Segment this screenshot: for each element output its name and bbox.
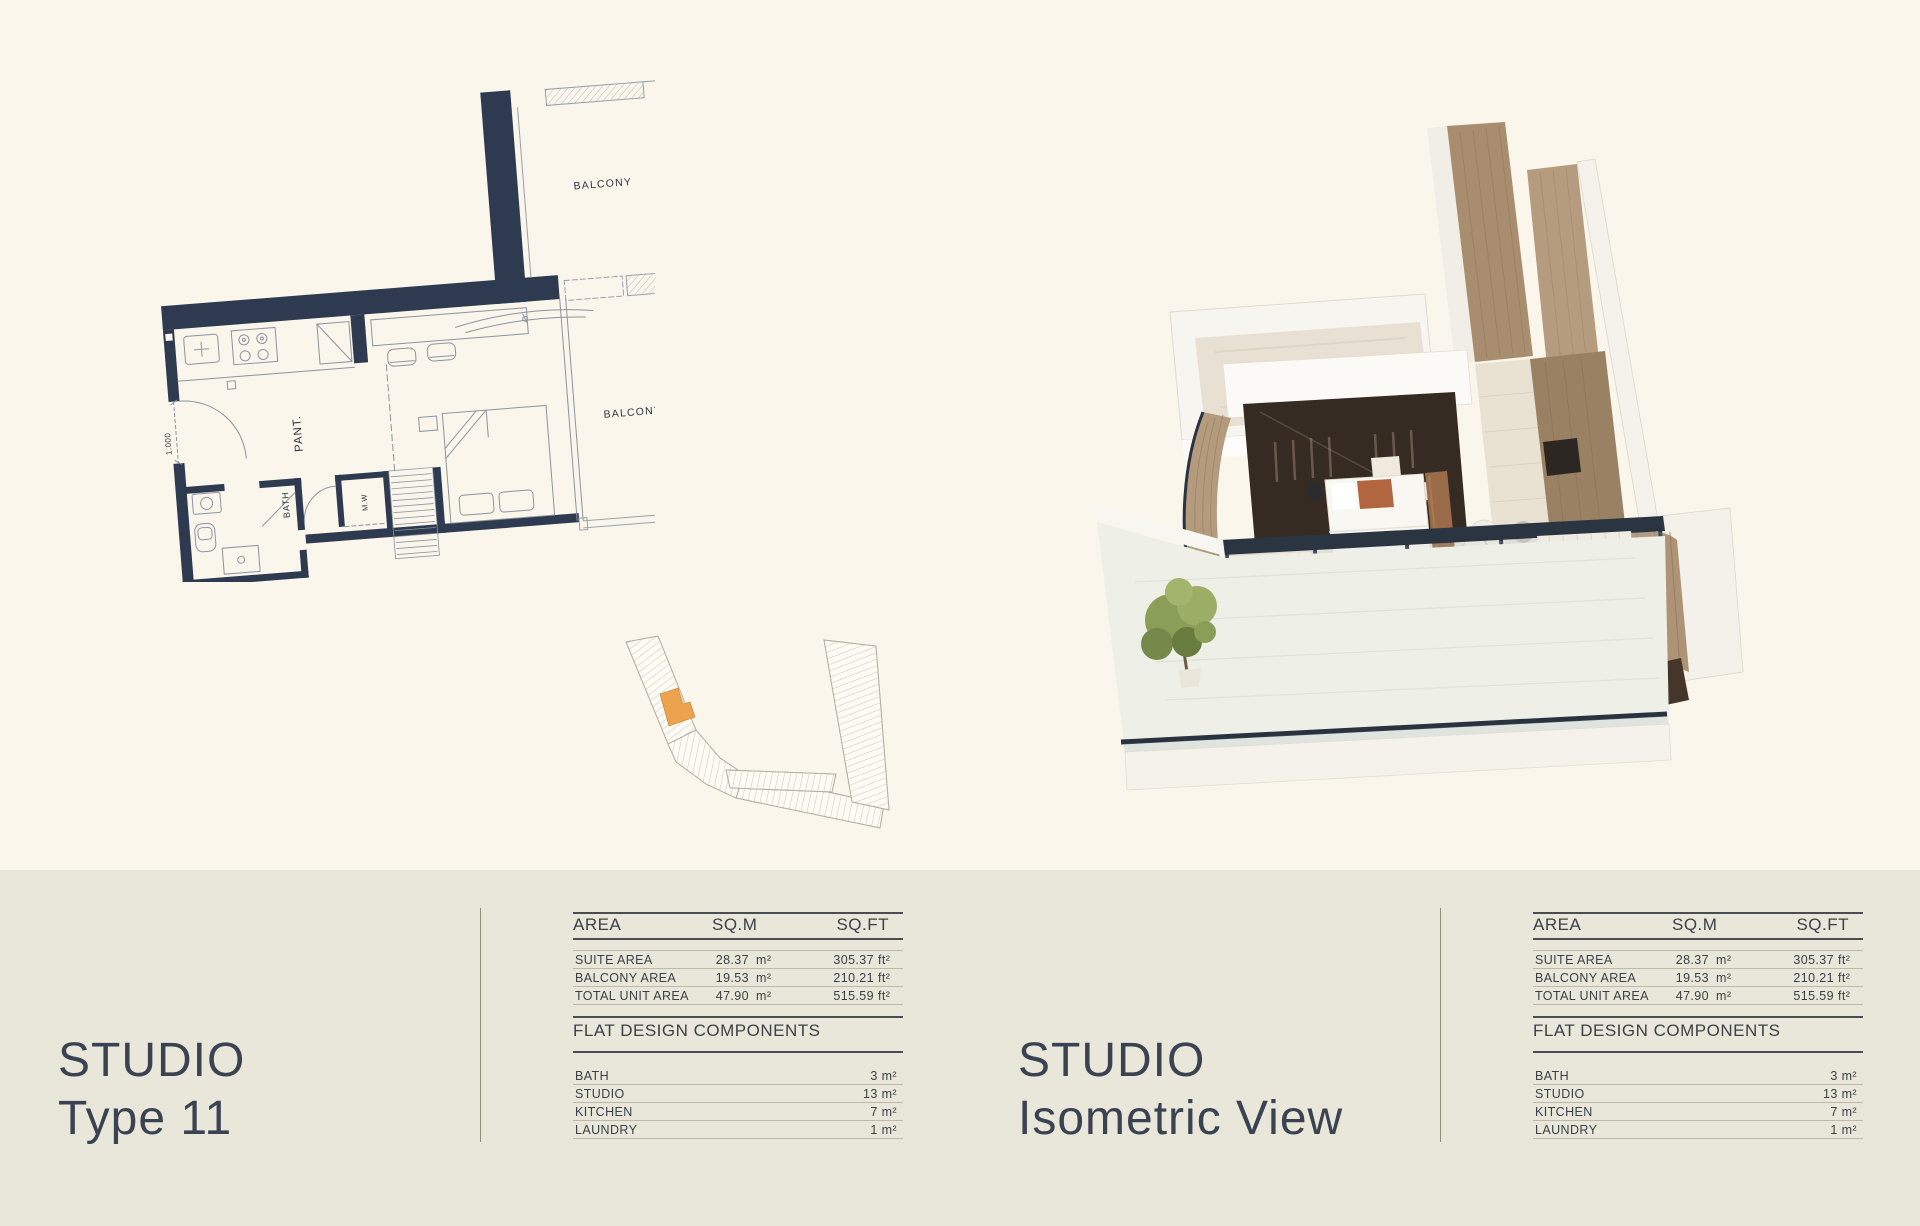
plan-labels: BALCONY BALCONY PANT. BATH M.W (257, 175, 655, 518)
side-table (1306, 483, 1324, 501)
isometric-view-svg (1075, 112, 1765, 812)
component-row: BATH3 m² (1533, 1068, 1863, 1085)
wardrobe (389, 468, 440, 559)
table-row: SUITE AREA 28.37m² 305.37ft² (1533, 952, 1863, 969)
dimension-label: 1.000 (163, 432, 174, 455)
col-sqft: SQ.FT (836, 915, 889, 935)
balconies (516, 80, 655, 533)
key-plan-svg (612, 632, 912, 832)
components-title: FLAT DESIGN COMPONENTS (1533, 1021, 1780, 1041)
col-sqm: SQ.M (712, 915, 757, 935)
divider-left (480, 908, 481, 1142)
floor-plan: 1.000 (135, 72, 655, 582)
table-row: TOTAL UNIT AREA 47.90m² 515.59ft² (573, 988, 903, 1005)
bed-pillow-terracotta (1357, 479, 1394, 509)
mw-label: M.W (359, 493, 369, 511)
table-row: SUITE AREA 28.37m² 305.37ft² (573, 952, 903, 969)
component-row: STUDIO13 m² (1533, 1086, 1863, 1103)
mw-dashed (345, 523, 387, 526)
key-plan (612, 632, 912, 832)
table-row: BALCONY AREA 19.53m² 210.21ft² (573, 970, 903, 987)
wall-notch (165, 334, 173, 342)
component-row: STUDIO13 m² (573, 1086, 903, 1103)
balcony-upper-label: BALCONY (573, 176, 632, 193)
components-title: FLAT DESIGN COMPONENTS (573, 1021, 820, 1041)
key-plan-building (626, 636, 889, 828)
table-row: BALCONY AREA 19.53m² 210.21ft² (1533, 970, 1863, 987)
middle-title-line1: STUDIO (1018, 1032, 1343, 1090)
middle-title-line2: Isometric View (1018, 1090, 1343, 1148)
component-row: LAUNDRY1 m² (1533, 1122, 1863, 1139)
cooktop (1543, 438, 1581, 476)
table-row: TOTAL UNIT AREA 47.90m² 515.59ft² (1533, 988, 1863, 1005)
entry-door (170, 395, 246, 464)
bed-pillow-white (1331, 482, 1357, 510)
middle-title: STUDIO Isometric View (1018, 1032, 1343, 1148)
left-title: STUDIO Type 11 (58, 1032, 245, 1148)
component-row: KITCHEN7 m² (573, 1104, 903, 1121)
col-area: AREA (1533, 915, 1581, 934)
component-row: LAUNDRY1 m² (573, 1122, 903, 1139)
divider-right (1440, 908, 1441, 1142)
bedroom-furniture (371, 302, 609, 528)
col-area: AREA (573, 915, 621, 934)
col-sqm: SQ.M (1672, 915, 1717, 935)
bath-label: BATH (280, 491, 292, 518)
isometric-view (1075, 112, 1765, 812)
col-sqft: SQ.FT (1796, 915, 1849, 935)
area-table-right: AREA SQ.M SQ.FT SUITE AREA 28.37m² 305.3… (1533, 905, 1863, 1150)
area-table-left: AREA SQ.M SQ.FT SUITE AREA 28.37m² 305.3… (573, 905, 903, 1150)
room-divider-dashed (386, 365, 395, 475)
balcony-lower-label: BALCONY (603, 404, 655, 421)
pantry-label: PANT. (291, 415, 306, 453)
component-row: KITCHEN7 m² (1533, 1104, 1863, 1121)
floor-plan-svg: 1.000 (135, 72, 655, 582)
kitchen-fixtures (174, 321, 355, 393)
component-row: BATH3 m² (573, 1068, 903, 1085)
left-title-line1: STUDIO (58, 1032, 245, 1090)
window-wall (560, 299, 583, 521)
left-title-line2: Type 11 (58, 1090, 245, 1148)
bath-fixtures (192, 483, 342, 576)
